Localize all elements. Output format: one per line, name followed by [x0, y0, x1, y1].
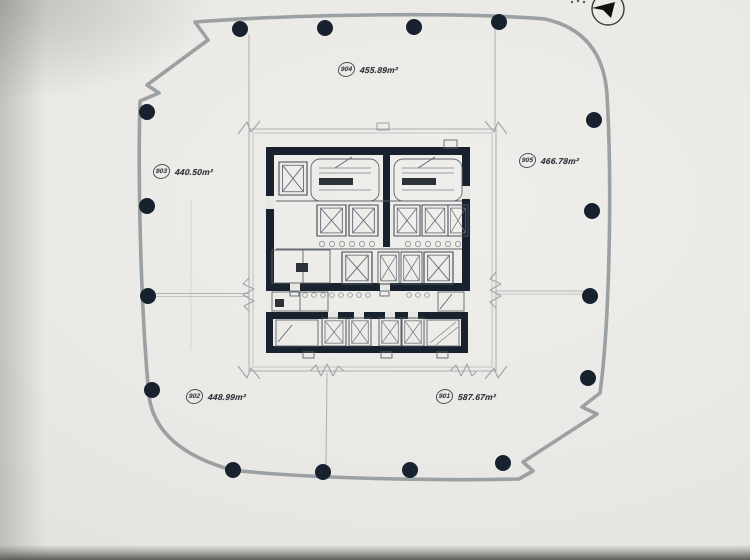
unit-number-badge: 901	[435, 389, 454, 404]
floor-plan-drawing	[0, 0, 750, 560]
unit-number-badge: 902	[185, 389, 204, 404]
unit-label-904: 904 455.89m²	[337, 62, 399, 77]
lower-elevator-bank	[266, 312, 468, 358]
north-arrow-icon	[571, 0, 624, 25]
unit-area-text: 440.50m²	[174, 167, 213, 177]
unit-area-text: 455.89m²	[359, 65, 398, 75]
unit-area-text: 466.78m²	[540, 156, 579, 166]
service-core	[266, 140, 470, 358]
unit-area-text: 587.67m²	[457, 392, 496, 402]
unit-label-903: 903 440.50m²	[152, 164, 214, 179]
unit-number-badge: 904	[337, 62, 356, 77]
unit-area-text: 448.99m²	[207, 392, 246, 402]
core-corridor	[272, 292, 464, 311]
outer-curtain-wall	[139, 15, 609, 480]
unit-label-905: 905 466.78m²	[518, 153, 580, 168]
unit-number-badge: 905	[518, 153, 537, 168]
core-interior-lines	[272, 201, 462, 283]
unit-label-902: 902 448.99m²	[185, 389, 247, 404]
column-grid	[139, 14, 602, 480]
unit-label-901: 901 587.67m²	[435, 389, 497, 404]
unit-number-badge: 903	[152, 164, 171, 179]
floor-plan-photo: 904 455.89m² 903 440.50m² 905 466.78m² 9…	[0, 0, 750, 560]
